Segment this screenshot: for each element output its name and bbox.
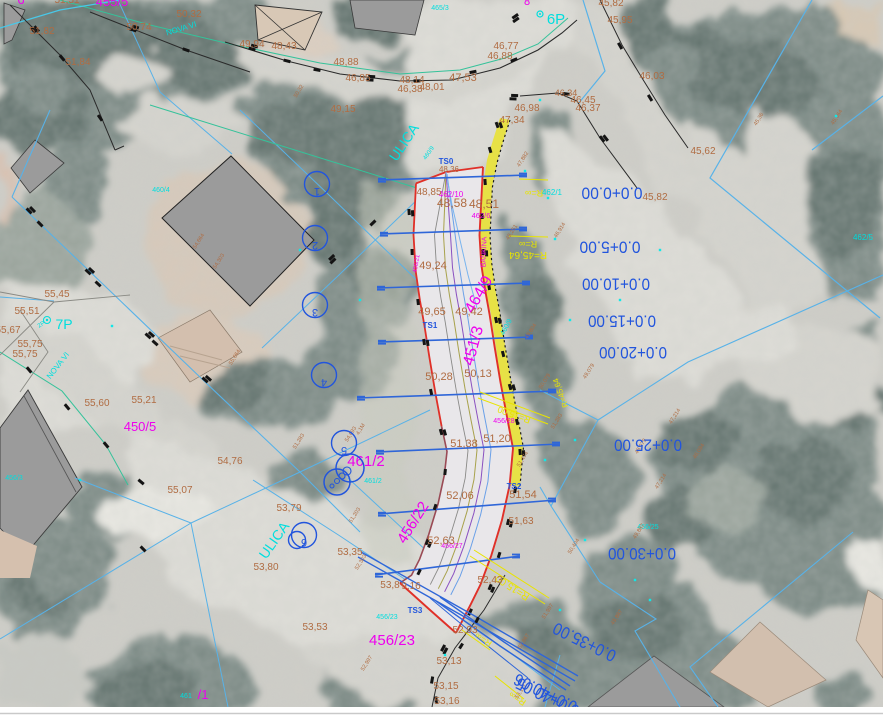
svg-text:50,13: 50,13 <box>464 368 492 380</box>
svg-text:8: 8 <box>524 0 530 8</box>
svg-text:51,20: 51,20 <box>483 433 511 445</box>
svg-text:53,80: 53,80 <box>253 562 278 573</box>
svg-text:TS1: TS1 <box>423 321 438 330</box>
svg-text:52,43: 52,43 <box>477 575 502 586</box>
svg-text:55,07: 55,07 <box>167 485 192 496</box>
svg-text:55,51: 55,51 <box>14 306 39 317</box>
svg-text:49,42: 49,42 <box>455 306 483 318</box>
svg-text:TS0: TS0 <box>439 157 454 166</box>
svg-text:55,67: 55,67 <box>0 325 21 336</box>
svg-text:46,03: 46,03 <box>639 71 664 82</box>
svg-text:461: 461 <box>180 693 192 700</box>
svg-text:53,13: 53,13 <box>436 656 461 667</box>
svg-text:47,53: 47,53 <box>449 72 477 84</box>
svg-text:462/1: 462/1 <box>542 188 563 197</box>
svg-text:46,34: 46,34 <box>555 88 578 98</box>
svg-text:0.0+25.00: 0.0+25.00 <box>614 436 682 455</box>
svg-text:9,16: 9,16 <box>401 581 421 592</box>
svg-text:55,21: 55,21 <box>131 395 156 406</box>
svg-text:456/23: 456/23 <box>369 632 415 649</box>
svg-text:4: 4 <box>321 376 327 388</box>
svg-text:0.0+10.00: 0.0+10.00 <box>582 275 650 294</box>
svg-text:53,16: 53,16 <box>434 696 459 707</box>
svg-text:51,38: 51,38 <box>450 438 478 450</box>
svg-text:456/3: 456/3 <box>5 475 23 482</box>
svg-text:50,74: 50,74 <box>126 22 151 33</box>
svg-text:456/23: 456/23 <box>376 614 398 621</box>
svg-text:53,8: 53,8 <box>380 580 400 591</box>
svg-text:465/3: 465/3 <box>431 5 449 12</box>
svg-text:0.0+5.00: 0.0+5.00 <box>580 238 641 257</box>
svg-text:55,60: 55,60 <box>84 398 109 409</box>
svg-text:6: 6 <box>17 0 24 7</box>
svg-text:52,63: 52,63 <box>427 535 455 547</box>
svg-text:/1: /1 <box>198 687 209 702</box>
svg-text:53,35: 53,35 <box>337 547 362 558</box>
svg-text:1: 1 <box>314 185 320 197</box>
svg-text:0.0+30.00: 0.0+30.00 <box>608 544 676 563</box>
svg-text:460/4: 460/4 <box>152 187 170 194</box>
svg-text:46,37: 46,37 <box>575 103 600 114</box>
svg-text:461/2: 461/2 <box>364 478 382 485</box>
svg-text:45,82: 45,82 <box>642 192 667 203</box>
svg-text:54,76: 54,76 <box>217 456 242 467</box>
svg-text:R=∞: R=∞ <box>519 239 537 249</box>
svg-text:53,79: 53,79 <box>276 503 301 514</box>
svg-text:55,45: 55,45 <box>44 289 69 300</box>
svg-text:48,36: 48,36 <box>439 165 460 174</box>
svg-text:BANKINA: BANKINA <box>480 236 488 267</box>
svg-text:0.0+15.00: 0.0+15.00 <box>588 312 656 331</box>
svg-text:47,34: 47,34 <box>499 115 524 126</box>
svg-text:461/2: 461/2 <box>347 453 385 470</box>
svg-text:53,53: 53,53 <box>302 622 327 633</box>
svg-text:6P: 6P <box>547 11 565 28</box>
svg-text:51,63: 51,63 <box>508 516 533 527</box>
svg-text:3: 3 <box>312 306 318 318</box>
svg-text:462/6: 462/6 <box>472 211 491 220</box>
svg-text:51,84: 51,84 <box>65 57 90 68</box>
svg-text:49,24: 49,24 <box>419 260 447 272</box>
svg-text:53,15: 53,15 <box>433 681 458 692</box>
svg-text:46,98: 46,98 <box>514 103 539 114</box>
svg-text:46,88: 46,88 <box>487 51 512 62</box>
svg-text:46,85: 46,85 <box>345 73 370 84</box>
svg-text:48,88: 48,88 <box>333 57 358 68</box>
svg-text:49,15: 49,15 <box>330 104 355 115</box>
svg-text:462/5: 462/5 <box>853 233 874 242</box>
svg-text:45,62: 45,62 <box>690 146 715 157</box>
svg-text:TS2: TS2 <box>507 482 522 491</box>
svg-text:0.0+0.00: 0.0+0.00 <box>582 184 643 203</box>
svg-text:52,93: 52,93 <box>452 625 477 636</box>
svg-text:R=45,64: R=45,64 <box>509 249 548 260</box>
svg-text:50,32: 50,32 <box>176 9 201 20</box>
svg-text:49,65: 49,65 <box>418 306 446 318</box>
svg-text:2: 2 <box>312 239 318 251</box>
svg-text:48,51: 48,51 <box>469 197 499 211</box>
svg-text:456/28: 456/28 <box>493 418 515 425</box>
svg-text:48,01: 48,01 <box>419 82 444 93</box>
svg-text:R=∞: R=∞ <box>525 188 543 198</box>
svg-text:7P: 7P <box>55 316 72 332</box>
svg-text:50,28: 50,28 <box>425 371 453 383</box>
svg-text:49,94: 49,94 <box>239 39 264 50</box>
svg-text:0.0+20.00: 0.0+20.00 <box>599 343 667 362</box>
svg-text:51,51: 51,51 <box>54 0 79 6</box>
svg-text:45,95: 45,95 <box>607 15 632 26</box>
svg-text:450/5: 450/5 <box>124 419 157 434</box>
svg-text:48,58: 48,58 <box>437 196 467 210</box>
svg-text:455/5: 455/5 <box>96 0 129 9</box>
svg-text:TS3: TS3 <box>408 606 423 615</box>
svg-text:51,82: 51,82 <box>29 26 54 37</box>
svg-text:55,75: 55,75 <box>12 349 37 360</box>
svg-text:48,43: 48,43 <box>271 41 296 52</box>
svg-text:52,06: 52,06 <box>446 490 474 502</box>
svg-text:45,82: 45,82 <box>598 0 623 9</box>
